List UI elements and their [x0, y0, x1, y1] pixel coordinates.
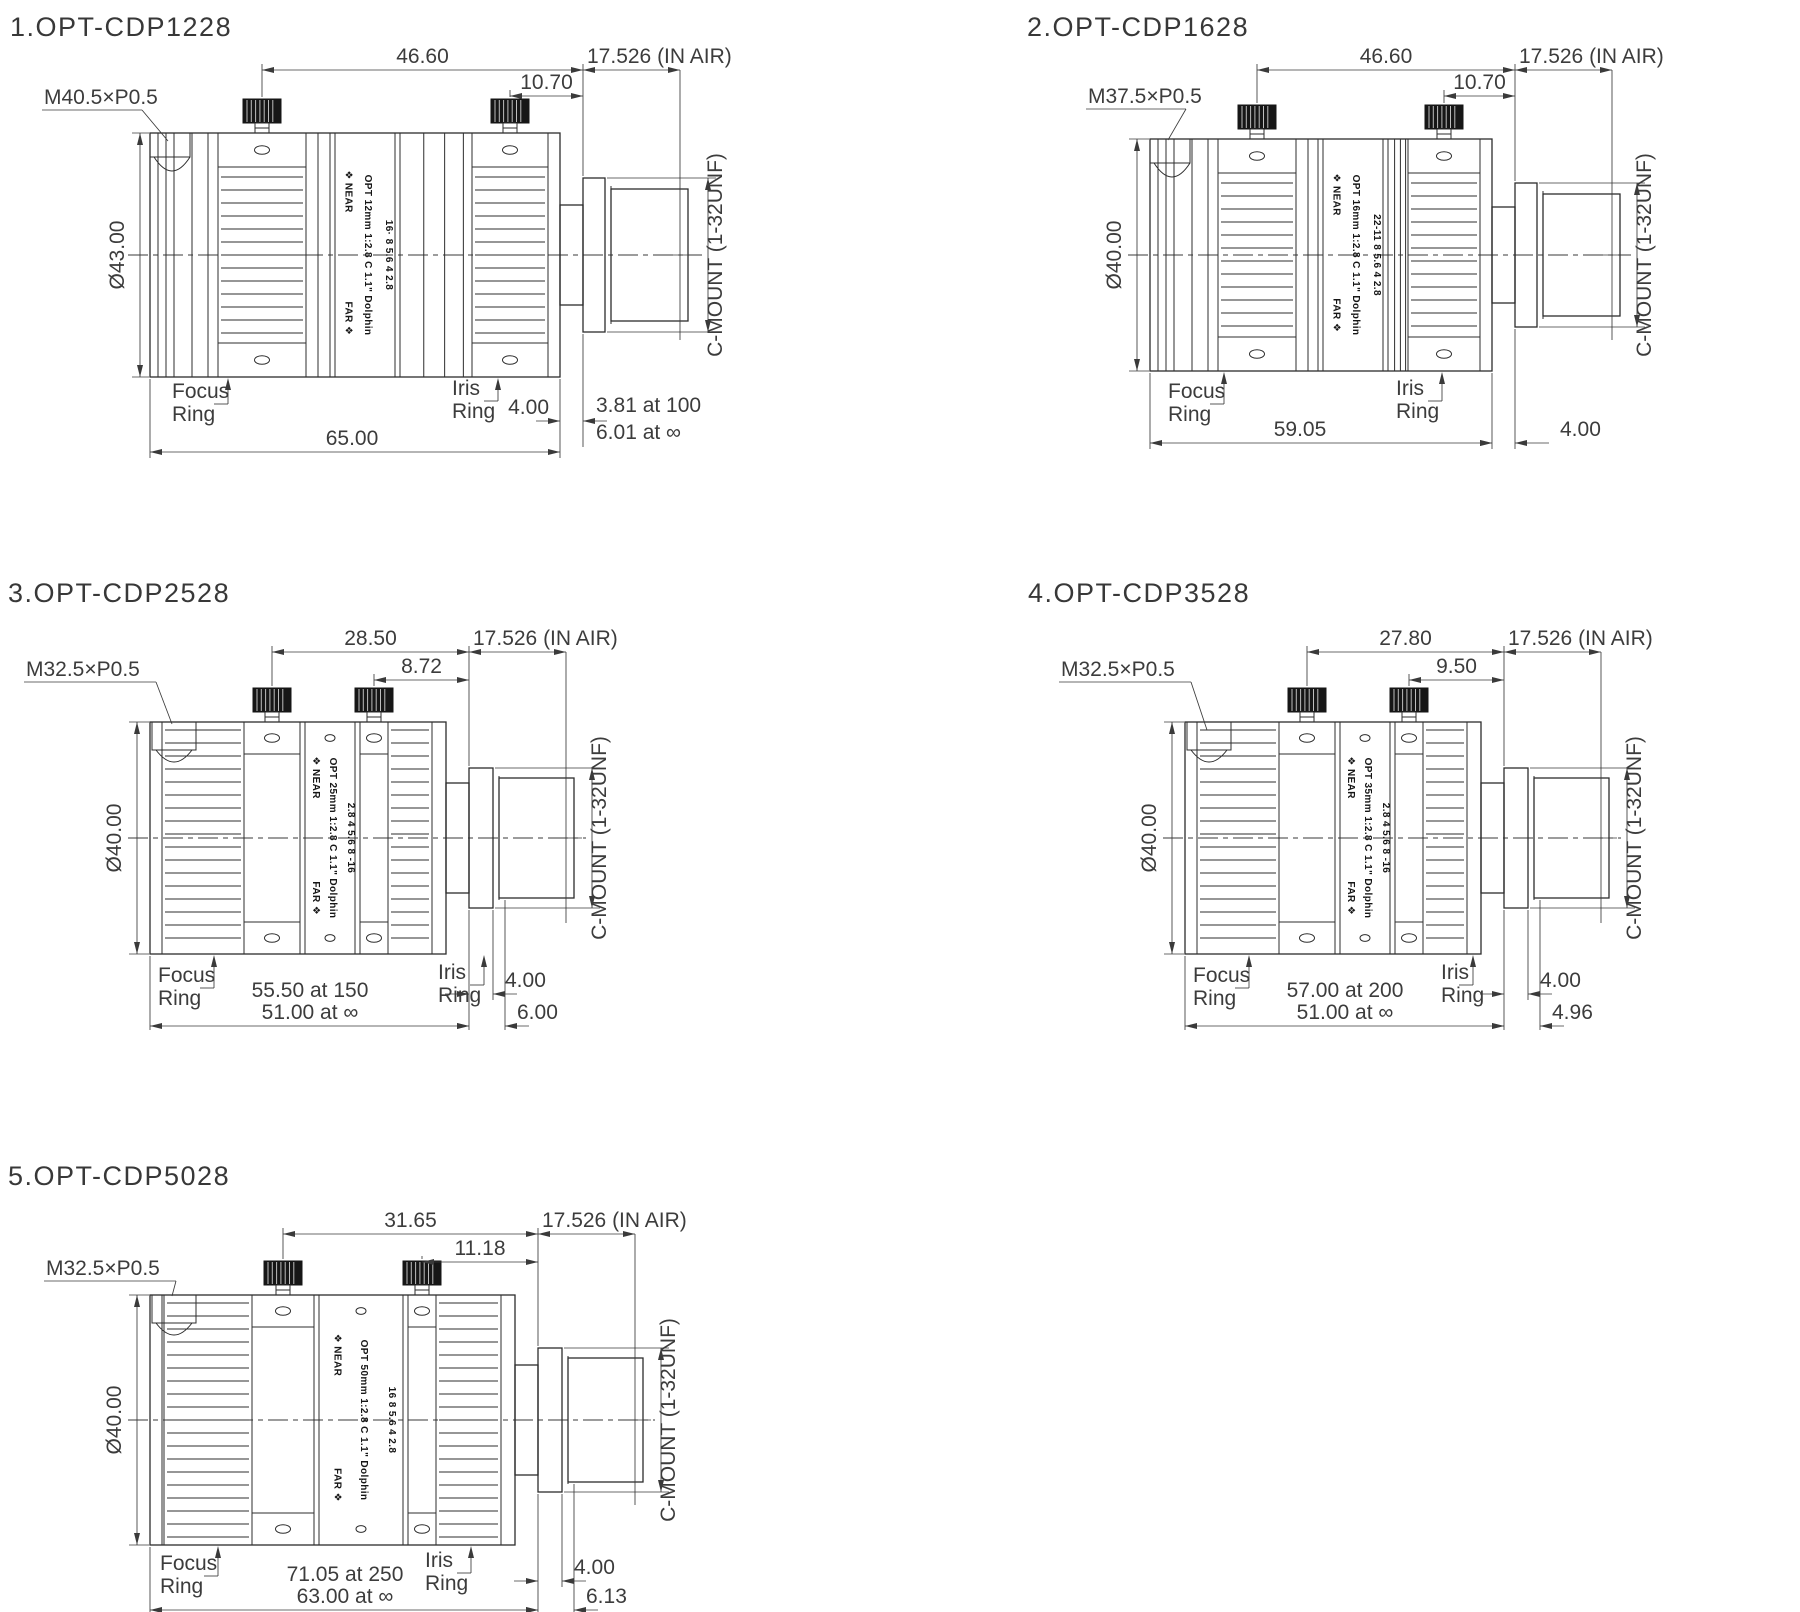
iris-ring-label-1: Iris: [438, 961, 466, 984]
thread-callout: M32.5×P0.5: [1061, 658, 1175, 681]
c-mount-label: C-MOUNT (1-32UNF): [588, 736, 611, 940]
barrel-model-label: OPT 12mm 1:2.8 C 1.1" Dolphin: [362, 175, 373, 336]
dim-flange: 4.00: [574, 1556, 615, 1579]
dim-diameter: Ø40.00: [103, 1386, 126, 1455]
dim-top-main: 46.60: [396, 45, 449, 68]
dim-right-2: 4.96: [1552, 1001, 1593, 1024]
barrel-near-label: ❖ NEAR: [1330, 173, 1341, 216]
barrel-model-label: OPT 16mm 1:2.8 C 1.1" Dolphin: [1350, 175, 1361, 336]
barrel-far-label: FAR ❖: [310, 881, 321, 915]
iris-ring: [472, 133, 548, 377]
iris-ring-label-2: Ring: [425, 1572, 468, 1595]
thread-callout: M32.5×P0.5: [46, 1257, 160, 1280]
focus-ring-label-1: Focus: [158, 964, 215, 987]
thread-callout: M37.5×P0.5: [1088, 85, 1202, 108]
iris-ring-label-1: Iris: [452, 377, 480, 400]
thumbscrew: [1288, 688, 1326, 722]
dim-top-main: 31.65: [384, 1209, 437, 1232]
barrel-aperture-scale: 2.8 4 5.6 8 -16: [1380, 803, 1391, 874]
dim-length-inf: 51.00 at ∞: [1297, 1001, 1394, 1024]
dim-top-main: 27.80: [1379, 627, 1432, 650]
panel-title: 3.OPT-CDP2528: [8, 578, 230, 608]
barrel-near-label: ❖ NEAR: [332, 1334, 343, 1377]
barrel-model-label: OPT 50mm 1:2.8 C 1.1" Dolphin: [358, 1340, 369, 1501]
iris-ring-label-2: Ring: [1441, 984, 1484, 1007]
iris-ring-label-1: Iris: [1441, 961, 1469, 984]
dim-length-inf: 51.00 at ∞: [262, 1001, 359, 1024]
lens-drawing-4: 4.OPT-CDP3528❖ NEARFAR ❖OPT 35mm 1:2.8 C…: [900, 490, 1800, 1030]
thread-hatch: [1187, 722, 1231, 750]
barrel-model-label: OPT 35mm 1:2.8 C 1.1" Dolphin: [1362, 758, 1373, 919]
thread-hatch: [150, 133, 190, 157]
dim-length-inf: 63.00 at ∞: [297, 1585, 394, 1608]
panel-title: 5.OPT-CDP5028: [8, 1161, 230, 1191]
iris-ring: [439, 1295, 501, 1545]
dim-in-air: 17.526 (IN AIR): [542, 1209, 687, 1232]
barrel-model-label: OPT 25mm 1:2.8 C 1.1" Dolphin: [327, 758, 338, 919]
thread-callout: M40.5×P0.5: [44, 86, 158, 109]
lens-drawing-1: 1.OPT-CDP1228❖ NEARFAR ❖OPT 12mm 1:2.8 C…: [0, 0, 900, 490]
barrel-near-label: ❖ NEAR: [1345, 756, 1356, 799]
barrel-far-label: FAR ❖: [1345, 881, 1356, 915]
focus-ring-label-1: Focus: [172, 380, 229, 403]
thumbscrew: [253, 688, 291, 722]
dim-flange: 4.00: [508, 396, 549, 419]
focus-ring-label-1: Focus: [1168, 380, 1225, 403]
dim-length-near: 71.05 at 250: [287, 1563, 404, 1586]
focus-ring-label-2: Ring: [158, 987, 201, 1010]
focus-ring-label-2: Ring: [1168, 403, 1211, 426]
panel-title: 4.OPT-CDP3528: [1028, 578, 1250, 608]
lens-drawing-5: 5.OPT-CDP5028❖ NEARFAR ❖OPT 50mm 1:2.8 C…: [0, 1030, 900, 1612]
thumbscrew: [1238, 105, 1276, 139]
focus-ring-label-1: Focus: [1193, 964, 1250, 987]
thumbscrew: [355, 688, 393, 722]
thread-hatch: [152, 722, 196, 750]
dim-right-2: 6.13: [586, 1585, 627, 1608]
dimensions-bottom: 4.003.81 at 1006.01 at ∞65.00: [150, 334, 701, 458]
barrel-near-label: ❖ NEAR: [342, 170, 353, 213]
iris-ring-label-1: Iris: [1396, 377, 1424, 400]
dim-in-air: 17.526 (IN AIR): [473, 627, 618, 650]
dim-top-main: 28.50: [344, 627, 397, 650]
dim-overall-length: 59.05: [1274, 418, 1327, 441]
dim-right-2: 6.00: [517, 1001, 558, 1024]
c-mount-label: C-MOUNT (1-32UNF): [657, 1318, 680, 1522]
dim-top-small: 9.50: [1436, 655, 1477, 678]
c-mount-label: C-MOUNT (1-32UNF): [1623, 736, 1646, 940]
dim-top-main: 46.60: [1360, 45, 1413, 68]
focus-ring-label-2: Ring: [172, 403, 215, 426]
barrel-far-label: FAR ❖: [342, 302, 353, 336]
dim-flange: 4.00: [505, 969, 546, 992]
dim-length-near: 55.50 at 150: [252, 979, 369, 1002]
barrel-aperture-scale: 2.8 4 5.6 8 -16: [345, 803, 356, 874]
dim-bfd-2: 6.01 at ∞: [596, 421, 681, 444]
thumbscrew: [243, 99, 281, 133]
dim-diameter: Ø43.00: [106, 221, 129, 290]
dim-diameter: Ø40.00: [1138, 804, 1161, 873]
focus-ring-label-2: Ring: [160, 1575, 203, 1598]
panel-title: 2.OPT-CDP1628: [1027, 12, 1249, 42]
lens-panel-4: 4.OPT-CDP3528❖ NEARFAR ❖OPT 35mm 1:2.8 C…: [900, 490, 1800, 1030]
dim-diameter: Ø40.00: [103, 804, 126, 873]
lens-panel-3: 3.OPT-CDP2528❖ NEARFAR ❖OPT 25mm 1:2.8 C…: [0, 490, 900, 1030]
thumbscrew: [491, 99, 529, 133]
barrel-far-label: FAR ❖: [1330, 298, 1341, 332]
lens-drawing-3: 3.OPT-CDP2528❖ NEARFAR ❖OPT 25mm 1:2.8 C…: [0, 490, 900, 1030]
barrel-aperture-scale: 16· 8 5.6 4 2.8: [383, 220, 394, 291]
barrel-aperture-scale: 16 8 5.6 4 2.8: [386, 1387, 397, 1454]
dim-top-small: 11.18: [455, 1237, 506, 1260]
dim-in-air: 17.526 (IN AIR): [1519, 45, 1664, 68]
c-mount-label: C-MOUNT (1-32UNF): [1633, 153, 1656, 357]
iris-ring-label-2: Ring: [452, 400, 495, 423]
panel-title: 1.OPT-CDP1228: [10, 12, 232, 42]
thumbscrew: [1425, 105, 1463, 139]
lens-drawing-2: 2.OPT-CDP1628❖ NEARFAR ❖OPT 16mm 1:2.8 C…: [900, 0, 1800, 490]
lens-panel-5: 5.OPT-CDP5028❖ NEARFAR ❖OPT 50mm 1:2.8 C…: [0, 1030, 900, 1612]
barrel-aperture-scale: 22-11 8 5.6 4 2.8: [1371, 214, 1382, 296]
thumbscrew: [1390, 688, 1428, 722]
iris-ring-label-2: Ring: [1396, 400, 1439, 423]
dim-in-air: 17.526 (IN AIR): [1508, 627, 1653, 650]
lens-panel-1: 1.OPT-CDP1228❖ NEARFAR ❖OPT 12mm 1:2.8 C…: [0, 0, 900, 490]
c-mount-label: C-MOUNT (1-32UNF): [704, 153, 727, 357]
thumbscrew: [264, 1261, 302, 1295]
dim-length-near: 57.00 at 200: [1287, 979, 1404, 1002]
dim-diameter: Ø40.00: [1103, 221, 1126, 290]
barrel-near-label: ❖ NEAR: [310, 756, 321, 799]
drawing-sheet: 1.OPT-CDP1228❖ NEARFAR ❖OPT 12mm 1:2.8 C…: [0, 0, 1800, 1612]
dimensions-bottom: 4.0071.05 at 25063.00 at ∞6.13: [150, 1484, 627, 1612]
dim-top-small: 10.70: [1453, 71, 1506, 94]
dim-top-small: 10.70: [520, 71, 573, 94]
dimensions-top: 31.6511.1817.526 (IN AIR): [283, 1209, 687, 1346]
dim-in-air: 17.526 (IN AIR): [587, 45, 732, 68]
lens-panel-2: 2.OPT-CDP1628❖ NEARFAR ❖OPT 16mm 1:2.8 C…: [900, 0, 1800, 490]
barrel-far-label: FAR ❖: [332, 1468, 343, 1502]
dim-overall-length: 65.00: [326, 427, 379, 450]
iris-ring-label-1: Iris: [425, 1549, 453, 1572]
focus-ring: [218, 133, 306, 377]
focus-ring-label-1: Focus: [160, 1552, 217, 1575]
thread-callout: M32.5×P0.5: [26, 658, 140, 681]
focus-ring-label-2: Ring: [1193, 987, 1236, 1010]
focus-ring: [164, 1295, 252, 1545]
dim-flange: 4.00: [1540, 969, 1581, 992]
thread-hatch: [152, 1295, 196, 1323]
dim-bfd-1: 3.81 at 100: [596, 394, 701, 417]
dim-flange: 4.00: [1560, 418, 1601, 441]
dim-top-small: 8.72: [401, 655, 442, 678]
thumbscrew: [403, 1261, 441, 1295]
thread-hatch: [1150, 139, 1190, 163]
